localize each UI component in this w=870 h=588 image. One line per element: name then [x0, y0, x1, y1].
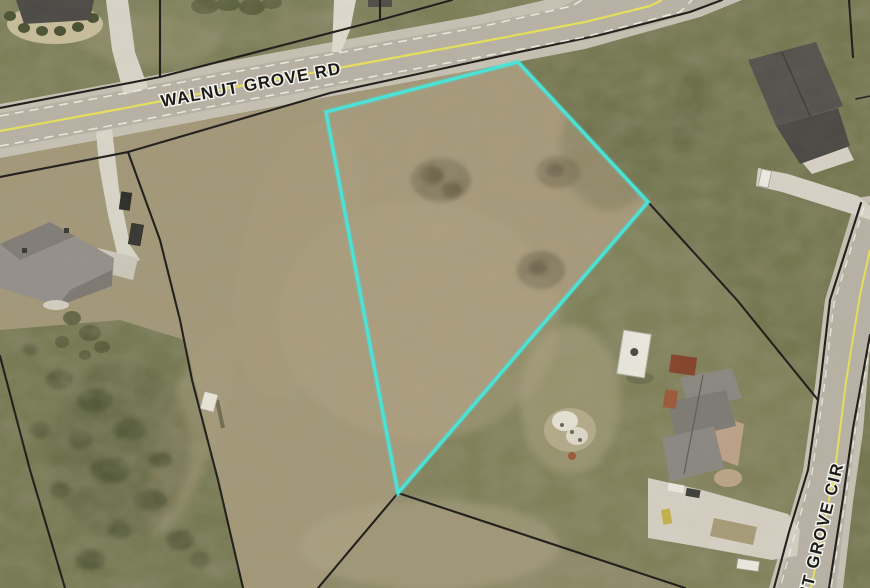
aerial-map-canvas: WALNUT GROVE RD WALNUT GROVE CIR — [0, 0, 870, 588]
unifying-grain-overlay — [0, 0, 870, 588]
aerial-map-view[interactable]: WALNUT GROVE RD WALNUT GROVE CIR — [0, 0, 870, 588]
